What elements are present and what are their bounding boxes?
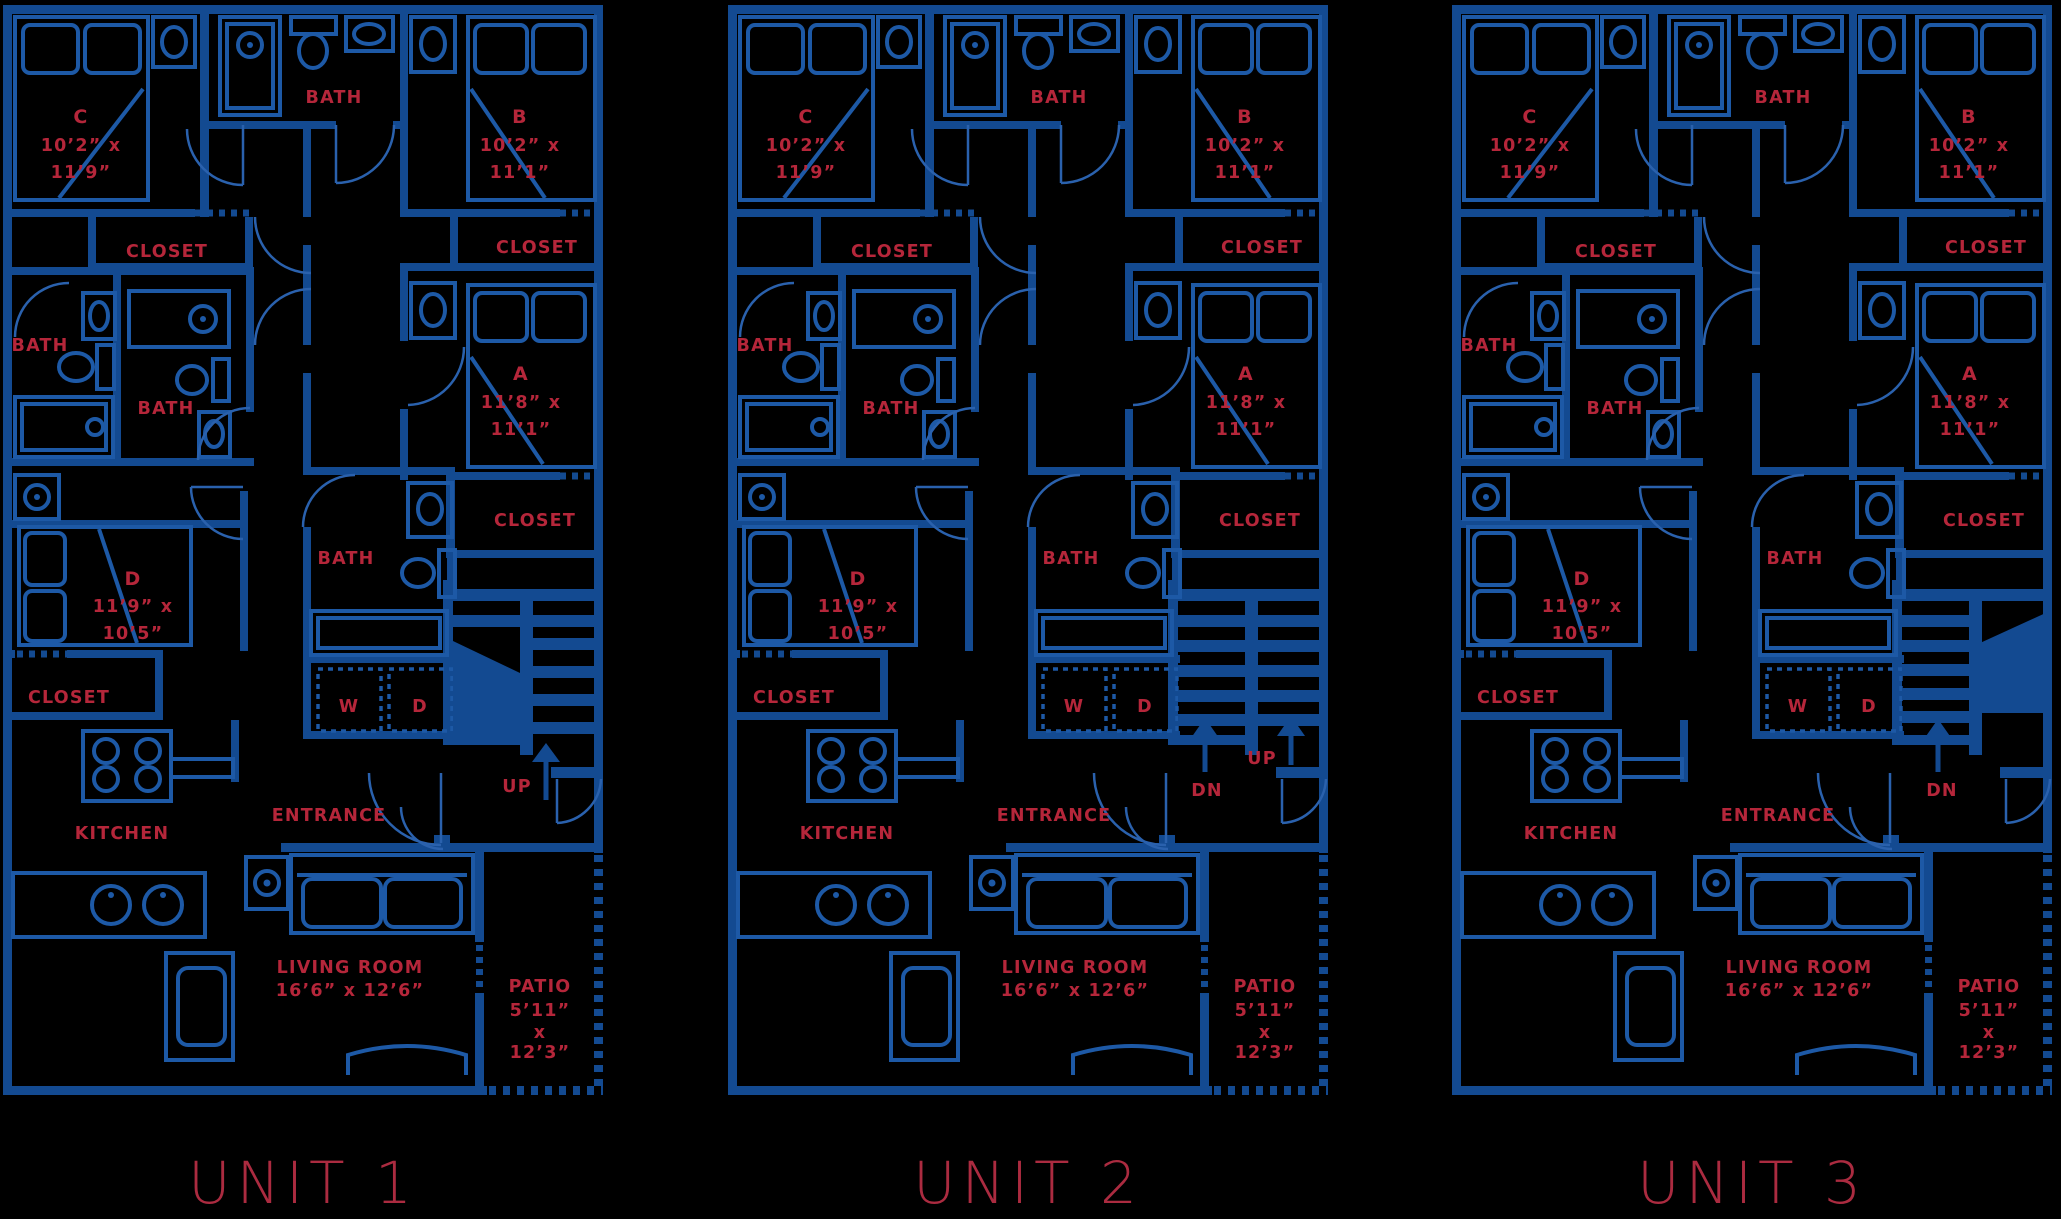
stair-wedge <box>453 641 520 738</box>
unit-3-floorplan: DN UNIT 3 <box>1452 5 2052 1215</box>
up-arrow-icon <box>532 743 560 762</box>
stairs-up-label: UP <box>1247 749 1276 769</box>
unit-2-plan-drawing: DN UP <box>728 5 1328 1095</box>
unit-title: UNIT 2 <box>728 1149 1328 1217</box>
stairs-dn-label: DN <box>1191 781 1223 801</box>
unit-2-floorplan: DN UP UNIT 2 <box>728 5 1328 1215</box>
stairs-up-label: UP <box>502 777 531 797</box>
unit-title: UNIT 3 <box>1452 1149 2052 1217</box>
unit-1-floorplan: UP UNIT 1 <box>3 5 603 1215</box>
floorplan-sheet: { "colors": { "background": "#000000", "… <box>0 0 2061 1219</box>
unit-3-plan-drawing: DN <box>1452 5 2052 1095</box>
stair-wedge <box>1980 611 2050 713</box>
unit-1-plan-drawing: UP <box>3 5 603 1095</box>
stairs-dn-label: DN <box>1926 781 1958 801</box>
unit-title: UNIT 1 <box>3 1149 603 1217</box>
